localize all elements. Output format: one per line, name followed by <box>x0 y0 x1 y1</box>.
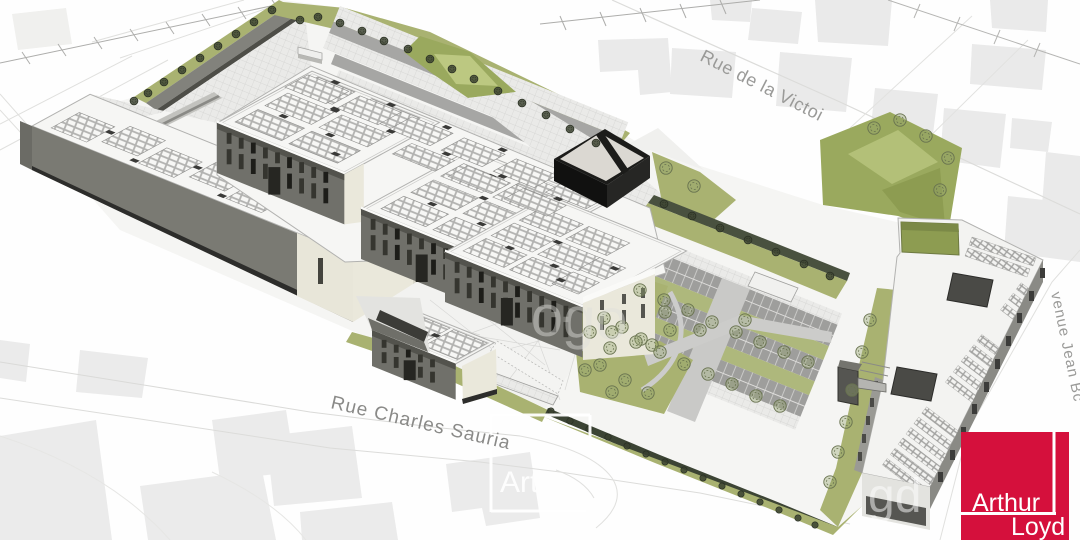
svg-text:Loyd: Loyd <box>1011 513 1065 540</box>
svg-text:Art: Art <box>500 466 539 499</box>
svg-text:gd: gd <box>868 470 921 523</box>
svg-text:ogo: ogo <box>529 283 629 353</box>
